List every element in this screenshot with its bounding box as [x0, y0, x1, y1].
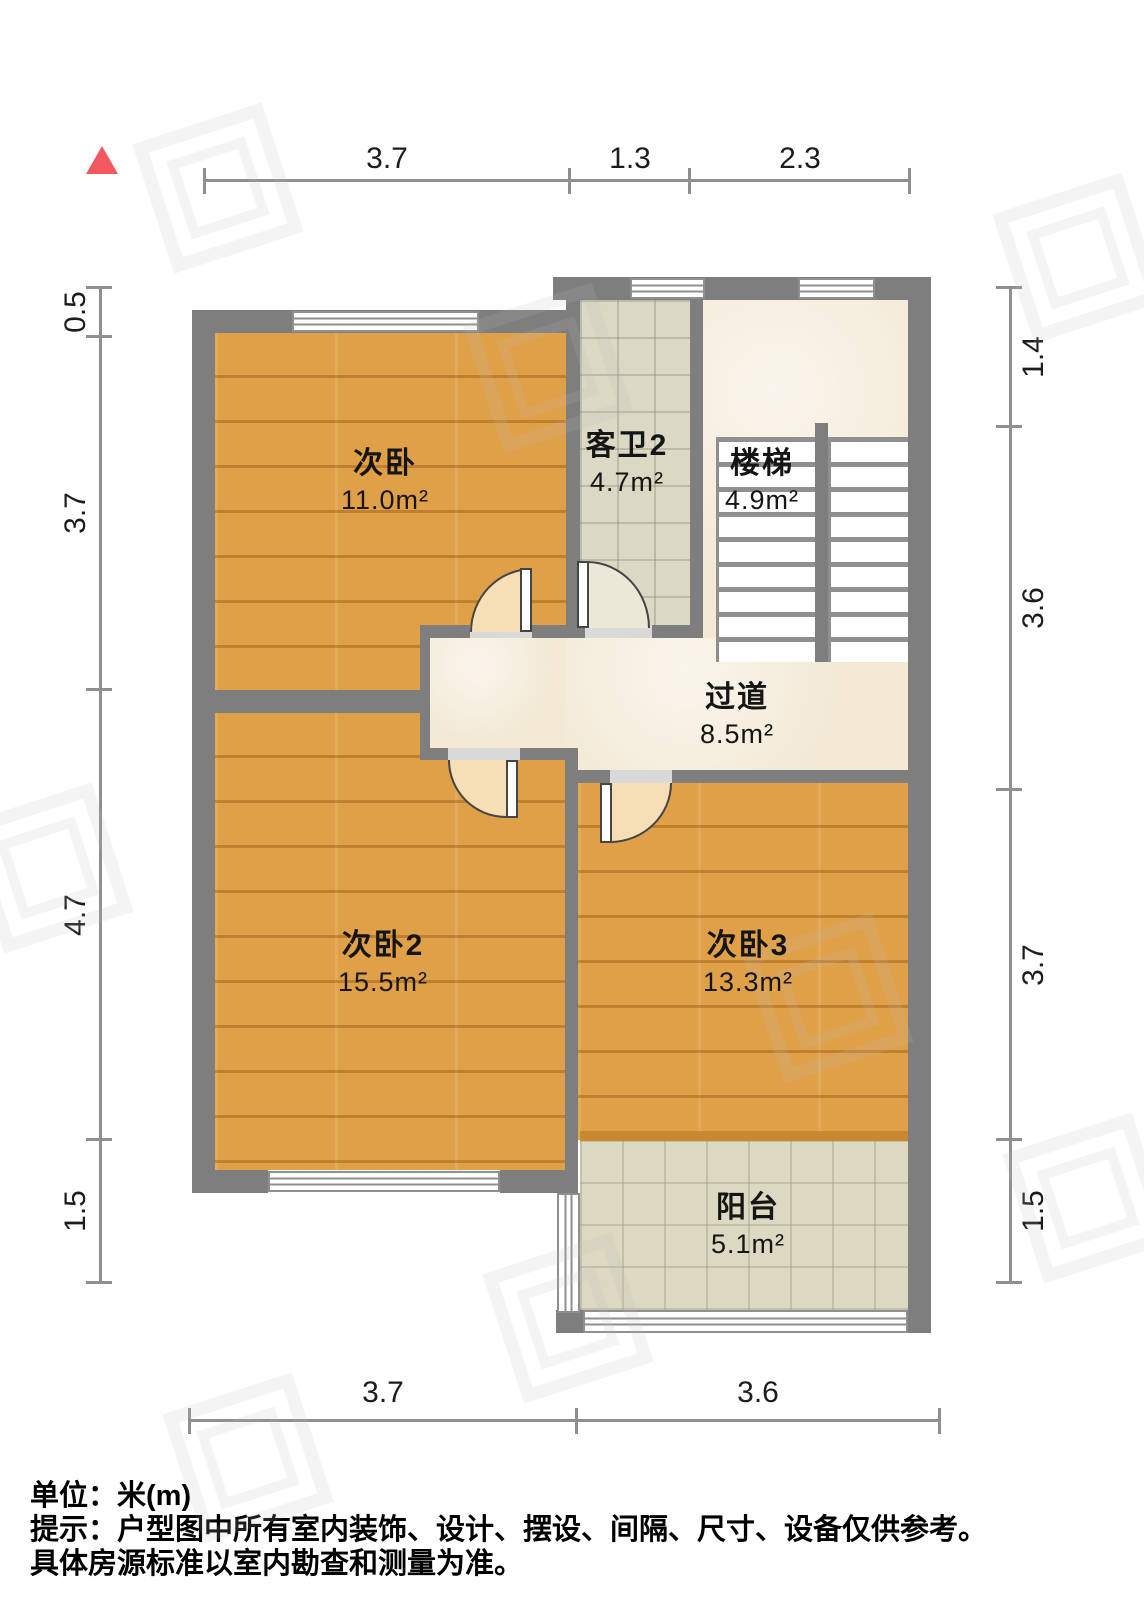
- dimension-tick: [86, 286, 112, 289]
- wall-segment: [672, 770, 908, 783]
- dimension-label: 2.3: [779, 142, 821, 176]
- room-name: 阳台: [711, 1182, 785, 1226]
- room-name: 楼梯: [725, 438, 799, 482]
- room-label-balcony: 阳台 5.1m²: [711, 1182, 785, 1260]
- dimension-tick: [996, 1281, 1022, 1284]
- dimension-tick: [938, 1408, 941, 1434]
- wall-segment: [420, 748, 448, 760]
- door-leaf-bedroom2: [506, 760, 518, 818]
- floor-plan-canvas: 次卧 11.0m² 客卫2 4.7m² 楼梯 4.9m² 过道 8.5m² 次卧…: [0, 0, 1144, 1611]
- window: [630, 278, 705, 299]
- dimension-label: 1.3: [609, 142, 651, 176]
- room-area: 5.1m²: [711, 1229, 785, 1260]
- door-leaf-bedroom3: [600, 783, 612, 843]
- dimension-tick: [996, 425, 1022, 428]
- dimension-label: 3.7: [366, 142, 408, 176]
- door-sill: [448, 748, 520, 760]
- wall-segment: [908, 277, 931, 1333]
- north-indicator-icon: [86, 146, 118, 174]
- door-leaf-bathroom2: [577, 561, 589, 628]
- room-name: 过道: [700, 672, 774, 716]
- dimension-tick: [86, 1138, 112, 1141]
- room-area: 11.0m²: [341, 485, 429, 516]
- dimension-tick: [86, 688, 112, 691]
- watermark: [1002, 1112, 1144, 1283]
- room-label-bedroom2: 次卧2 15.5m²: [338, 920, 428, 998]
- door-sill: [610, 770, 672, 783]
- room-area: 4.7m²: [586, 467, 669, 498]
- dimension-label: 3.6: [1017, 587, 1051, 629]
- dimension-line-left: [99, 288, 102, 1283]
- dimension-tick: [568, 168, 571, 194]
- dimension-line-right: [1009, 288, 1012, 1283]
- room-floor-hallway-notch: [430, 638, 565, 748]
- dimension-tick: [575, 1408, 578, 1434]
- room-name: 客卫2: [586, 420, 669, 464]
- dimension-tick: [86, 1281, 112, 1284]
- dimension-tick: [996, 1138, 1022, 1141]
- disclaimer-line2: 具体房源标准以室内勘查和测量为准。: [30, 1540, 523, 1582]
- dimension-label: 3.6: [737, 1376, 779, 1410]
- dimension-label: 3.7: [1017, 944, 1051, 986]
- dimension-tick: [688, 168, 691, 194]
- room-label-hallway: 过道 8.5m²: [700, 672, 774, 750]
- room-name: 次卧3: [703, 920, 793, 964]
- door-leaf-bedroom1: [520, 568, 532, 632]
- room-label-bedroom1: 次卧 11.0m²: [341, 438, 429, 516]
- dimension-label: 3.7: [362, 1376, 404, 1410]
- wall-segment: [500, 1170, 578, 1193]
- dimension-tick: [996, 788, 1022, 791]
- room-area: 4.9m²: [725, 485, 799, 516]
- dimension-label: 1.5: [59, 1190, 93, 1232]
- room-name: 次卧2: [338, 920, 428, 964]
- room-label-bathroom2: 客卫2 4.7m²: [586, 420, 669, 498]
- dimension-label: 0.5: [59, 291, 93, 333]
- wall-segment: [690, 300, 703, 638]
- wall-segment: [192, 690, 430, 713]
- watermark: [0, 782, 134, 953]
- window: [798, 278, 875, 299]
- dimension-line-top: [205, 179, 910, 182]
- watermark: [132, 102, 303, 273]
- room-area: 15.5m²: [338, 967, 428, 998]
- window: [292, 311, 479, 332]
- wall-segment: [192, 1170, 268, 1193]
- wall-segment: [652, 625, 703, 638]
- wall-segment: [578, 770, 610, 783]
- dimension-label: 3.7: [59, 492, 93, 534]
- room-label-stairs: 楼梯 4.9m²: [725, 438, 799, 516]
- room-name: 次卧: [341, 438, 429, 482]
- dimension-tick: [908, 168, 911, 194]
- room-label-bedroom3: 次卧3 13.3m²: [703, 920, 793, 998]
- window: [268, 1171, 500, 1192]
- balcony-threshold: [580, 1131, 908, 1141]
- stair-divider: [815, 423, 828, 662]
- room-area: 8.5m²: [700, 719, 774, 750]
- wall-segment: [192, 310, 215, 1193]
- watermark: [992, 172, 1144, 343]
- wall-segment: [565, 748, 578, 1193]
- dimension-tick: [86, 335, 112, 338]
- room-area: 13.3m²: [703, 967, 793, 998]
- stair-flight-right: [828, 437, 911, 662]
